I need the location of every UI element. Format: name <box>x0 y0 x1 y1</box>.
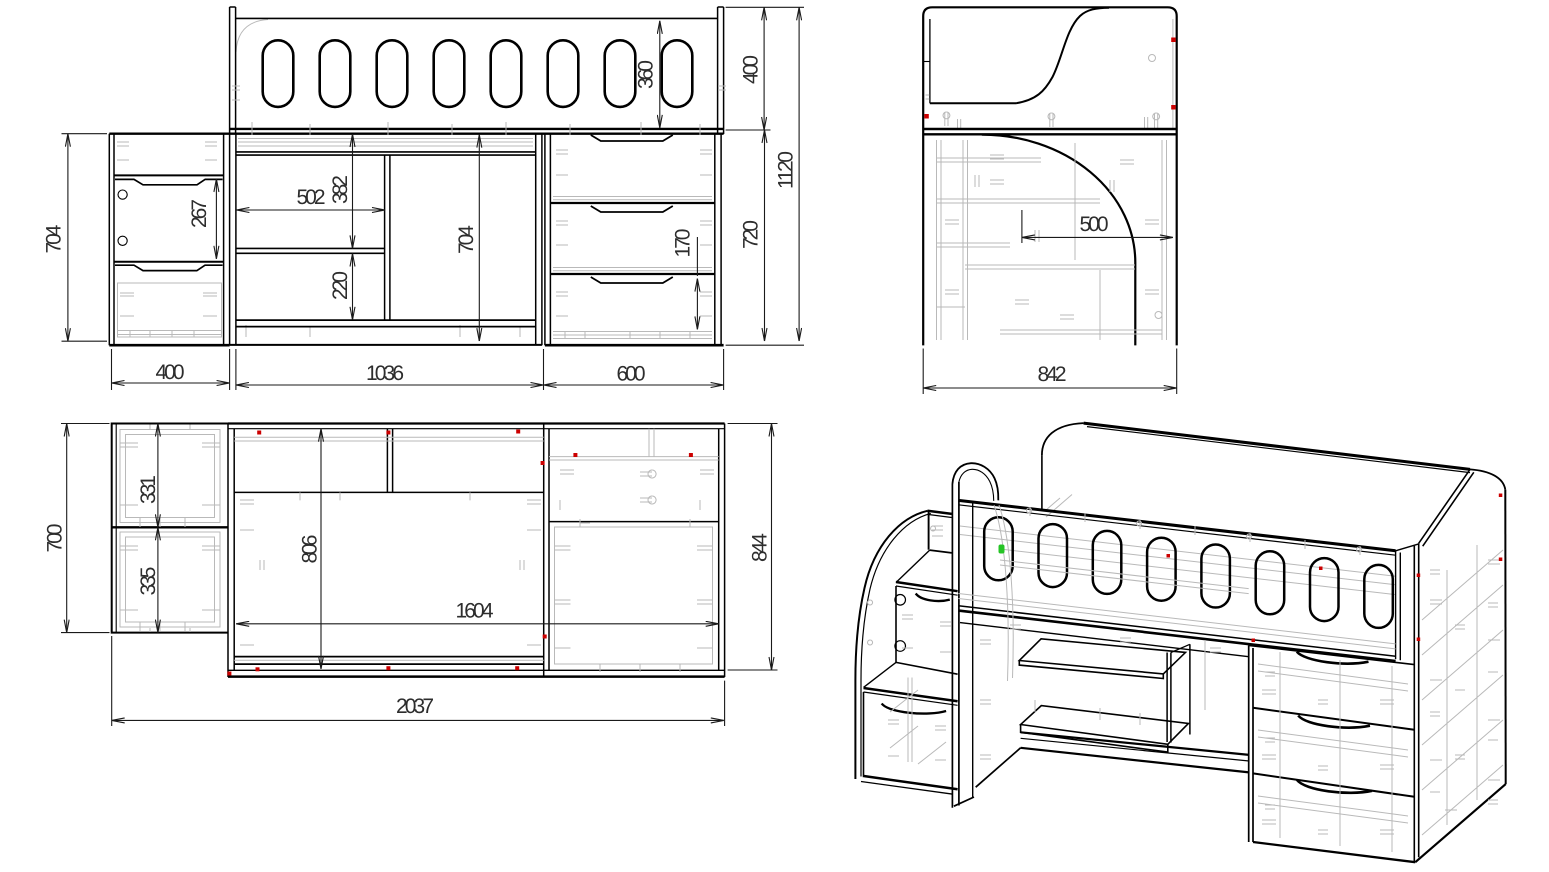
svg-text:382: 382 <box>329 175 352 204</box>
svg-text:842: 842 <box>1038 363 1067 386</box>
svg-text:331: 331 <box>137 475 160 504</box>
svg-text:400: 400 <box>740 55 763 84</box>
svg-text:335: 335 <box>137 567 160 596</box>
svg-text:704: 704 <box>43 224 66 253</box>
svg-text:1120: 1120 <box>775 151 798 189</box>
svg-text:267: 267 <box>188 199 211 228</box>
svg-text:600: 600 <box>617 363 646 386</box>
svg-text:844: 844 <box>749 533 772 562</box>
svg-text:500: 500 <box>1080 213 1109 236</box>
svg-text:1604: 1604 <box>456 600 494 623</box>
svg-text:360: 360 <box>635 60 658 89</box>
svg-text:502: 502 <box>297 186 326 209</box>
svg-text:1036: 1036 <box>366 362 404 385</box>
svg-text:704: 704 <box>455 225 478 254</box>
svg-text:2037: 2037 <box>396 695 434 718</box>
svg-text:806: 806 <box>299 535 322 564</box>
svg-text:400: 400 <box>156 361 185 384</box>
svg-text:700: 700 <box>44 524 67 553</box>
svg-text:720: 720 <box>740 220 763 249</box>
svg-text:170: 170 <box>672 229 695 258</box>
svg-text:220: 220 <box>329 271 352 300</box>
